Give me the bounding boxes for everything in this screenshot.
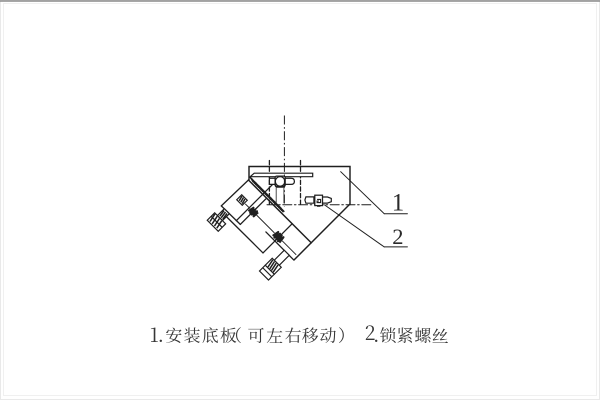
svg-text:1: 1 [392,189,405,216]
svg-text:2: 2 [392,224,403,249]
